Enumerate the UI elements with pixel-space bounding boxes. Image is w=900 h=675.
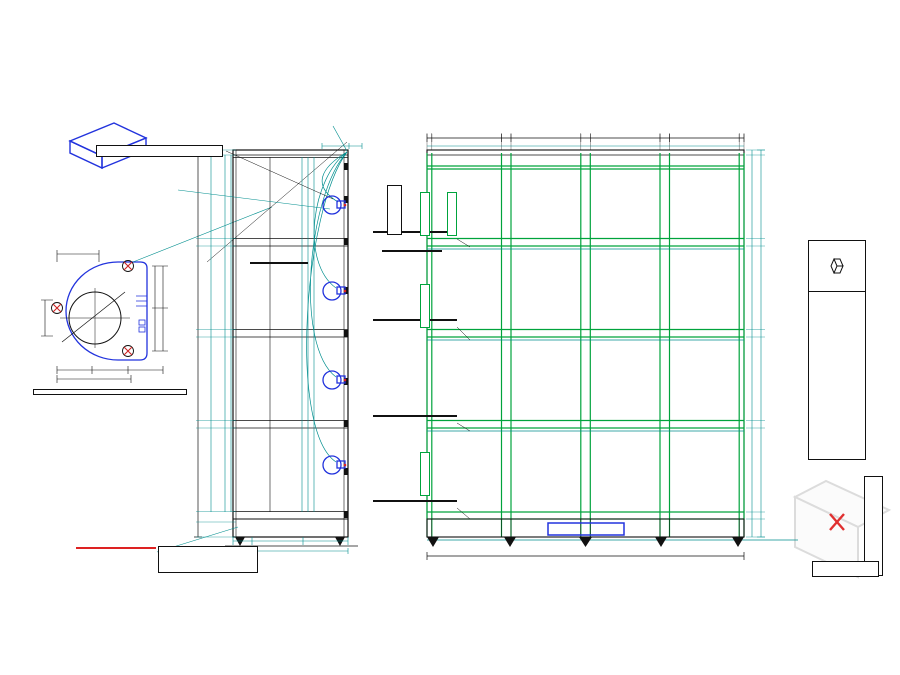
red-note-box (76, 547, 156, 549)
side-callout-box (250, 262, 308, 264)
front-callout-o3-box (382, 250, 442, 252)
blue-note-box (158, 546, 258, 573)
title-block-logo (809, 241, 865, 292)
front-dim-lines (427, 133, 765, 560)
drawing-sheet (0, 0, 900, 675)
company-info (809, 293, 865, 459)
front-callout-box (373, 500, 457, 502)
lock-detail-drawing (41, 207, 272, 383)
warning-note-box (33, 389, 187, 395)
side-view-linework (207, 142, 358, 546)
front-callout-box (373, 319, 457, 321)
green-material-tag (420, 192, 430, 236)
title-block (808, 240, 866, 460)
side-lock-icons (323, 196, 346, 474)
spec-block (18, 460, 180, 461)
hpl-material-label (387, 185, 402, 235)
front-callout-box (373, 415, 457, 417)
alsanit-logo (830, 258, 844, 274)
green-material-tag (447, 192, 457, 236)
front-view-linework (427, 150, 798, 547)
green-material-tag (420, 452, 430, 496)
side-dim-lines (157, 126, 362, 554)
cad-linework (0, 0, 900, 675)
date-stamp (812, 561, 879, 577)
alsanit-cube-icon (830, 258, 844, 274)
green-material-tag (420, 284, 430, 328)
count-box-leader (226, 151, 333, 199)
front-callout-box (373, 231, 457, 233)
lock-count-box (96, 145, 223, 157)
